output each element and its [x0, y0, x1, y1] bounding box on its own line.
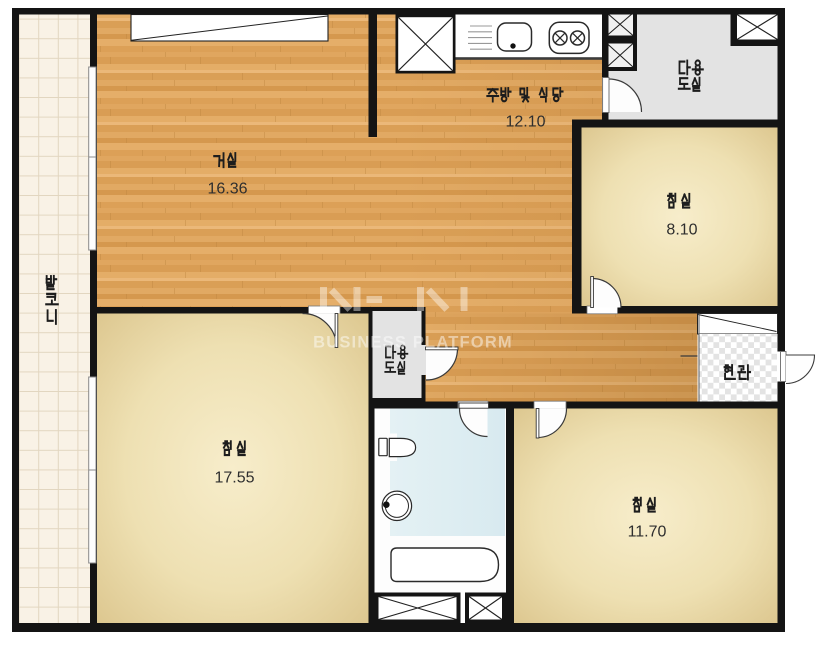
svg-text:BUSINESS PLATFORM: BUSINESS PLATFORM	[313, 333, 513, 351]
svg-text:16.36: 16.36	[207, 181, 247, 198]
svg-text:17.55: 17.55	[214, 470, 254, 487]
svg-text:11.70: 11.70	[628, 524, 667, 541]
svg-text:12.10: 12.10	[505, 114, 545, 131]
svg-text:8.10: 8.10	[666, 222, 697, 239]
